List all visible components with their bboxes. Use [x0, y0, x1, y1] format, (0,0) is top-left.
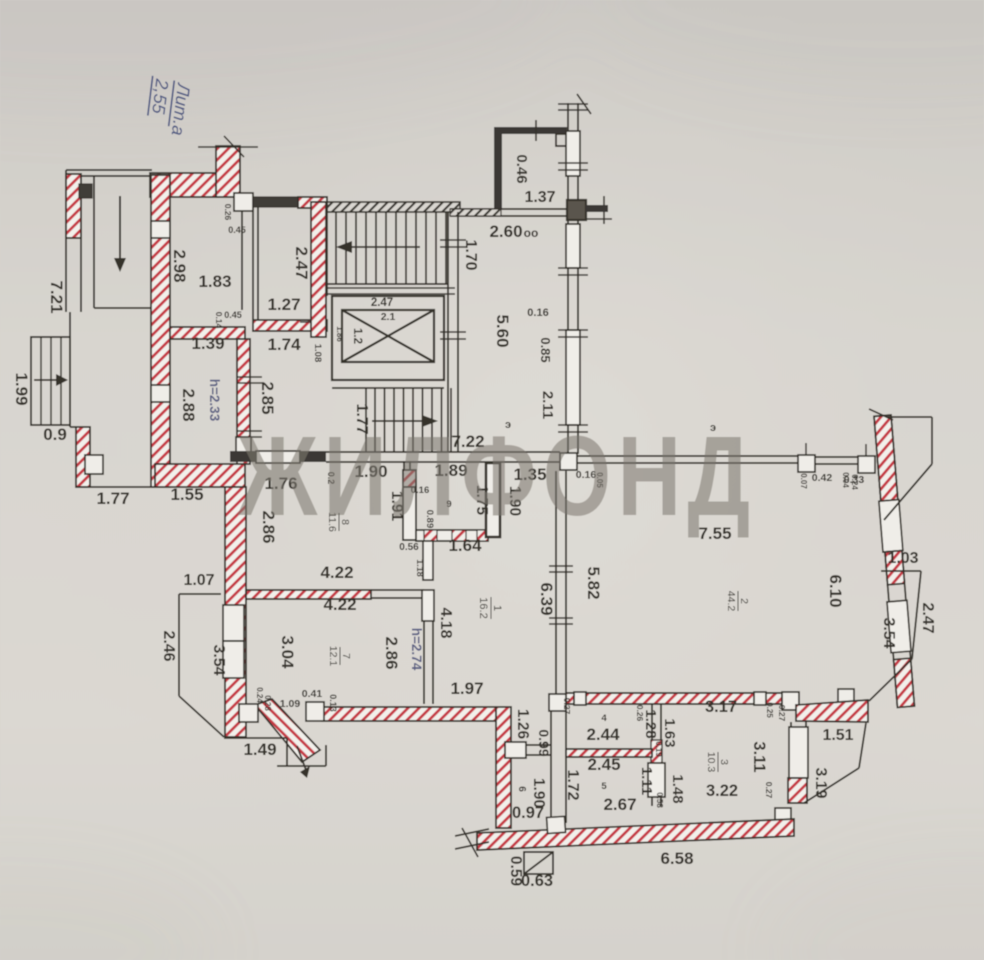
- svg-text:0.16: 0.16: [527, 307, 548, 319]
- svg-text:16.2: 16.2: [477, 597, 489, 618]
- svg-text:0.33: 0.33: [844, 474, 865, 486]
- svg-text:0.99: 0.99: [536, 729, 552, 756]
- svg-text:0.56: 0.56: [399, 542, 419, 553]
- svg-text:1.99: 1.99: [12, 372, 31, 405]
- svg-text:1: 1: [491, 605, 503, 611]
- svg-text:10.3: 10.3: [705, 752, 717, 773]
- svg-text:3.22: 3.22: [706, 782, 738, 800]
- svg-text:3: 3: [718, 759, 730, 765]
- svg-text:0.42: 0.42: [812, 472, 833, 484]
- svg-text:4.22: 4.22: [320, 563, 353, 582]
- svg-text:0.07: 0.07: [799, 473, 808, 489]
- svg-text:5: 5: [601, 781, 607, 792]
- svg-text:1.11: 1.11: [638, 767, 655, 795]
- svg-text:2: 2: [738, 598, 750, 604]
- svg-text:2.98: 2.98: [170, 249, 189, 282]
- svg-text:0.9: 0.9: [43, 425, 67, 444]
- svg-text:1.2: 1.2: [351, 328, 363, 344]
- svg-text:4: 4: [601, 713, 607, 724]
- svg-text:7.21: 7.21: [47, 280, 66, 313]
- svg-text:0.25: 0.25: [765, 702, 774, 718]
- svg-text:1.86: 1.86: [335, 326, 344, 342]
- svg-text:4.22: 4.22: [323, 595, 356, 614]
- svg-text:0.63: 0.63: [521, 872, 553, 890]
- svg-text:4.18: 4.18: [437, 607, 454, 638]
- svg-text:2.1: 2.1: [381, 311, 396, 323]
- svg-text:oо: oо: [524, 226, 539, 240]
- svg-text:0.97: 0.97: [512, 804, 544, 822]
- svg-text:2.47: 2.47: [292, 246, 311, 279]
- svg-text:0.27: 0.27: [562, 698, 572, 715]
- svg-text:3.11: 3.11: [750, 741, 768, 772]
- svg-text:2.44: 2.44: [586, 725, 620, 744]
- svg-text:0.24: 0.24: [255, 687, 264, 703]
- svg-text:3.04: 3.04: [278, 635, 297, 669]
- svg-text:0.28: 0.28: [263, 695, 272, 711]
- svg-text:5.60: 5.60: [493, 314, 512, 347]
- svg-text:1.39: 1.39: [191, 334, 224, 353]
- svg-text:6.39: 6.39: [537, 582, 556, 615]
- svg-text:1.08: 1.08: [312, 344, 323, 363]
- svg-text:7: 7: [340, 653, 352, 659]
- svg-text:1.07: 1.07: [183, 572, 214, 589]
- svg-text:0.27: 0.27: [777, 705, 787, 722]
- svg-text:2.47: 2.47: [919, 602, 936, 633]
- svg-text:6.58: 6.58: [660, 849, 693, 868]
- svg-text:1.51: 1.51: [822, 727, 853, 744]
- svg-text:0.26: 0.26: [635, 705, 645, 722]
- svg-text:1.18: 1.18: [415, 559, 425, 577]
- svg-text:ЖИЛФОНД: ЖИЛФОНД: [237, 414, 757, 540]
- svg-text:6.10: 6.10: [826, 574, 845, 607]
- svg-text:1.03: 1.03: [887, 550, 918, 567]
- svg-text:1.09: 1.09: [280, 698, 301, 710]
- svg-text:0.13: 0.13: [328, 694, 338, 712]
- svg-text:0.45: 0.45: [228, 225, 246, 235]
- svg-text:2.88: 2.88: [179, 388, 198, 421]
- svg-text:1.48: 1.48: [669, 774, 686, 803]
- svg-text:12.1: 12.1: [327, 646, 339, 667]
- svg-text:0.26: 0.26: [223, 204, 233, 221]
- svg-text:6: 6: [516, 786, 527, 792]
- svg-text:0.58: 0.58: [655, 792, 664, 808]
- svg-text:1.26: 1.26: [514, 709, 531, 740]
- svg-text:2.85: 2.85: [258, 381, 277, 414]
- svg-text:2.67: 2.67: [603, 795, 636, 814]
- svg-text:1.70: 1.70: [462, 239, 479, 270]
- svg-text:2.86: 2.86: [382, 636, 401, 669]
- svg-text:h=2.33: h=2.33: [207, 379, 222, 422]
- svg-text:1.97: 1.97: [450, 679, 483, 698]
- svg-text:2.46: 2.46: [160, 630, 177, 661]
- svg-text:1.27: 1.27: [267, 295, 300, 314]
- svg-text:0.45: 0.45: [224, 310, 242, 320]
- svg-text:5.82: 5.82: [584, 566, 603, 599]
- svg-text:1.77: 1.77: [96, 489, 129, 508]
- svg-text:1.49: 1.49: [243, 740, 276, 759]
- svg-text:1.72: 1.72: [564, 769, 581, 800]
- svg-text:0.46: 0.46: [513, 154, 530, 183]
- svg-text:3.54: 3.54: [880, 617, 897, 648]
- svg-text:0.27: 0.27: [764, 782, 774, 799]
- svg-text:1.37: 1.37: [524, 189, 555, 206]
- svg-text:0.41: 0.41: [302, 688, 323, 700]
- svg-text:44.2: 44.2: [725, 591, 737, 612]
- svg-text:0.19: 0.19: [654, 741, 663, 757]
- svg-text:h=2.74: h=2.74: [409, 628, 424, 671]
- svg-text:2.60: 2.60: [489, 222, 522, 241]
- svg-text:3.54: 3.54: [210, 644, 227, 675]
- svg-text:3.19: 3.19: [812, 767, 829, 798]
- svg-text:0.14: 0.14: [214, 312, 224, 329]
- svg-text:1.74: 1.74: [267, 335, 301, 354]
- svg-text:2.47: 2.47: [371, 297, 393, 309]
- svg-text:0.85: 0.85: [538, 337, 553, 362]
- svg-text:3.17: 3.17: [705, 698, 737, 716]
- svg-text:2.45: 2.45: [587, 755, 620, 774]
- svg-text:1.83: 1.83: [198, 272, 231, 291]
